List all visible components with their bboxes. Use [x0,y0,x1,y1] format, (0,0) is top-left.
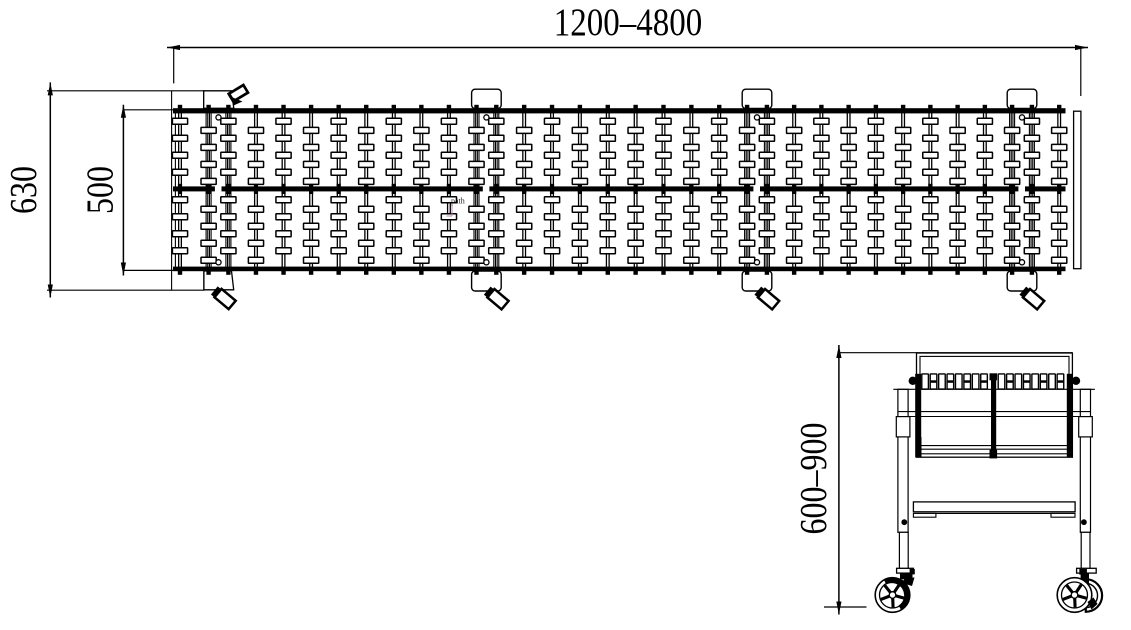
svg-text:600–900: 600–900 [792,423,834,535]
svg-text:1200–4800: 1200–4800 [554,0,702,43]
svg-text:path: path [451,197,465,206]
svg-text:500: 500 [79,166,121,214]
svg-text:630: 630 [2,166,44,214]
